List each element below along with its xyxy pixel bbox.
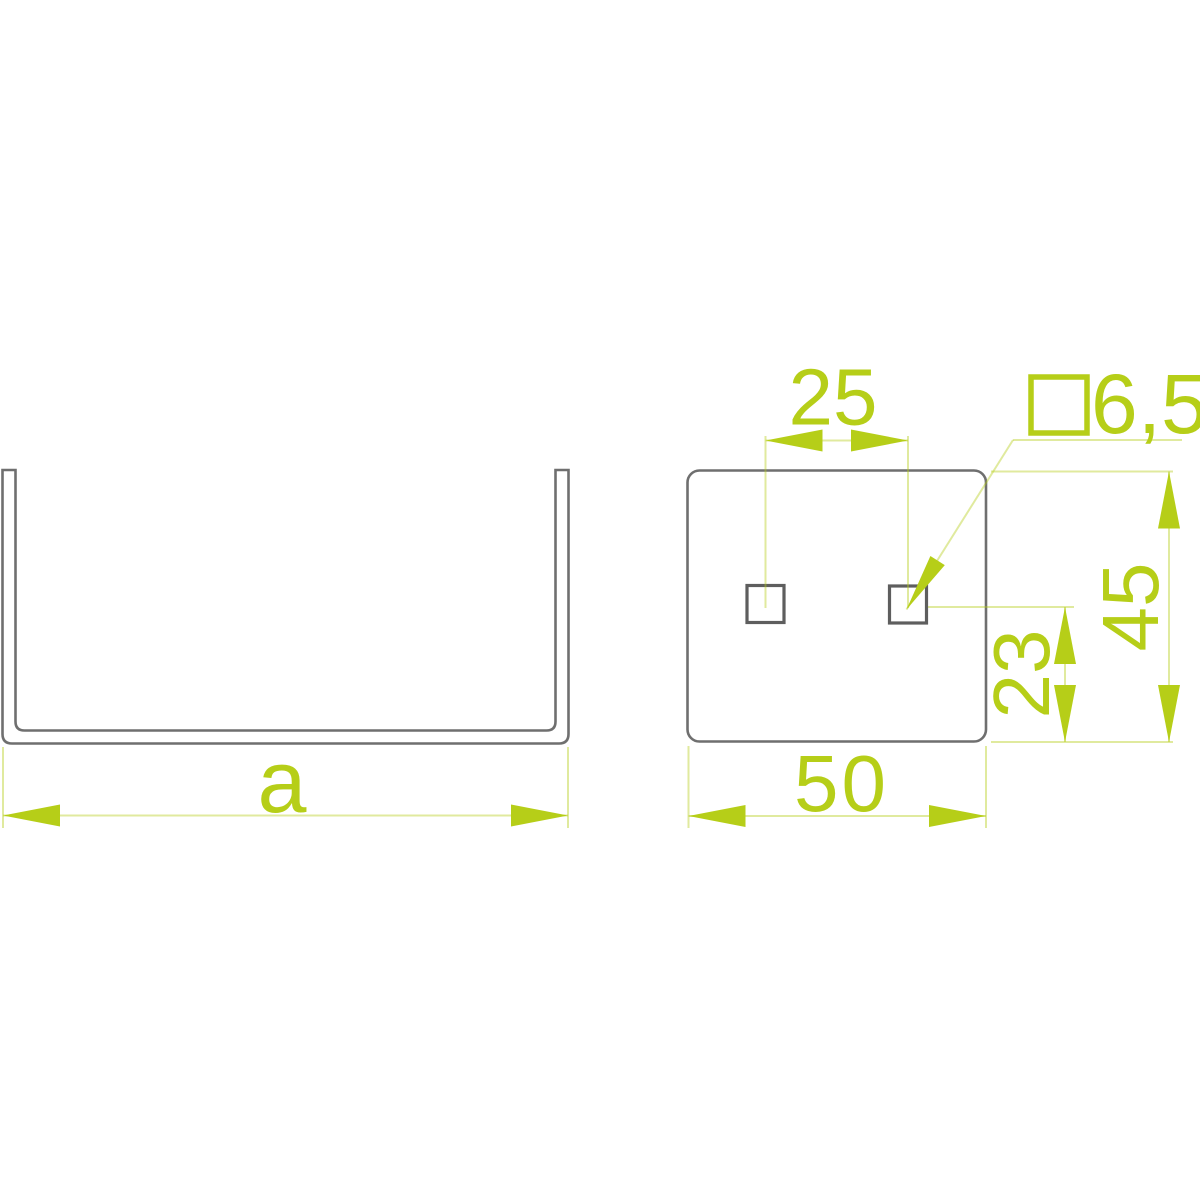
svg-text:a: a [258,732,307,831]
svg-text:23: 23 [977,630,1066,719]
svg-text:45: 45 [1086,563,1175,652]
svg-text:6,5: 6,5 [1091,357,1200,451]
svg-text:25: 25 [789,353,878,442]
svg-text:50: 50 [794,739,889,828]
